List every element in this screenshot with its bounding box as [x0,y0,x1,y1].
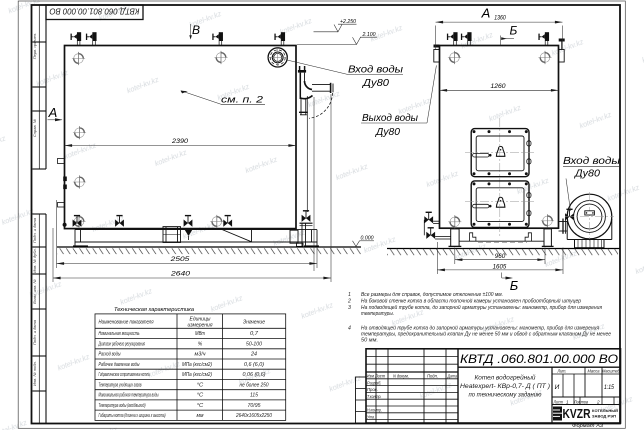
svg-text:А: А [481,6,491,21]
svg-text:50 мм.: 50 мм. [361,338,378,344]
svg-text:1260: 1260 [491,84,507,90]
svg-text:Вход воды: Вход воды [348,65,404,76]
svg-text:В: В [192,23,200,37]
svg-text:Температура уходящих газов: Температура уходящих газов [99,382,142,388]
svg-text:1605: 1605 [493,265,507,271]
svg-text:Утв.: Утв. [367,414,375,419]
svg-text:И: И [555,384,560,391]
svg-text:Подп.: Подп. [427,373,438,378]
svg-text:%: % [198,341,203,347]
svg-text:КОТЕЛЬНЫЙ: КОТЕЛЬНЫЙ [592,408,618,413]
svg-text:Наименование показателя: Наименование показателя [99,319,154,325]
svg-text:мм: мм [197,413,205,419]
svg-text:1:15: 1:15 [604,384,614,391]
svg-text:На подводящей трубе котла, д: На подводящей трубе котла, до запорной а… [361,304,602,311]
svg-text:МПа (кгс/см2): МПа (кгс/см2) [182,362,212,368]
svg-text:Инв. № дубл.: Инв. № дубл. [32,248,37,273]
svg-text:N докум.: N докум. [393,373,409,378]
svg-text:°С: °С [197,382,204,388]
svg-text:температуры.: температуры. [361,311,394,317]
svg-text:ЗАВОД РЭП: ЗАВОД РЭП [592,414,616,419]
svg-text:KVZR: KVZR [563,406,591,421]
svg-text:2: 2 [596,399,600,404]
svg-text:Изм Лист: Изм Лист [367,373,386,378]
svg-text:2505: 2505 [169,256,189,263]
svg-text:температуры, предохранительный: температуры, предохранительный клапан Ду… [361,331,611,338]
svg-text:°С: °С [197,403,204,409]
svg-text:Взам. инв. №: Взам. инв. № [32,278,37,303]
svg-text:Диапазон рабочего регулировани: Диапазон рабочего регулирования [98,341,145,347]
svg-text:МПа (кгс/см2): МПа (кгс/см2) [182,372,212,378]
svg-text:50-100: 50-100 [246,341,262,347]
svg-text:Техническая характеристика: Техническая характеристика [114,307,194,313]
svg-text:по техническому заданию: по техническому заданию [469,391,542,399]
svg-text:Гидравлическое сопротивление к: Гидравлическое сопротивление котла [99,372,150,378]
svg-text:1360: 1360 [494,16,506,22]
svg-text:0,6 (6,0): 0,6 (6,0) [244,362,264,368]
svg-text:0.000: 0.000 [361,235,374,241]
svg-text:На боковой стенке котла в обла: На боковой стенке котла в области топочн… [361,297,581,304]
svg-text:На отводящей трубе котла до за: На отводящей трубе котла до запорной арм… [361,324,599,331]
svg-text:2640: 2640 [170,271,191,278]
svg-text:Масса: Масса [588,368,600,373]
svg-text:960: 960 [495,254,506,260]
svg-text:24: 24 [250,352,257,358]
svg-text:Ду80: Ду80 [375,127,400,138]
svg-text:Дата: Дата [447,373,458,378]
svg-text:Подп. и дата: Подп. и дата [32,319,37,345]
svg-text:Подп. и дата: Подп. и дата [32,217,37,243]
svg-text:2: 2 [347,298,351,304]
svg-text:Heatexpert- КВр-0,7- Д ( ПТ ): Heatexpert- КВр-0,7- Д ( ПТ ) [460,383,550,390]
svg-text:Температура воды (вход/выход): Температура воды (вход/выход) [99,403,146,409]
svg-text:КВТД .060.801.00.000 ВО: КВТД .060.801.00.000 ВО [460,352,618,366]
svg-text:А: А [48,105,58,120]
svg-text:115: 115 [250,393,258,399]
svg-text:Б: Б [510,23,518,37]
svg-text:Вход воды: Вход воды [563,156,621,167]
svg-text:см. п. 2: см. п. 2 [221,95,264,106]
svg-text:Формат А3: Формат А3 [572,423,604,428]
svg-text:м3/ч: м3/ч [195,352,206,358]
svg-text:1: 1 [348,292,351,298]
svg-text:Ду80: Ду80 [362,78,390,89]
svg-text:КВТД.060.801.00.000 ВО: КВТД.060.801.00.000 ВО [49,6,139,15]
svg-text:Номинальная мощность: Номинальная мощность [99,331,140,337]
svg-text:70/95: 70/95 [248,403,261,409]
svg-text:Габариты котла (длинна х ширин: Габариты котла (длинна х ширина х высота… [99,413,166,419]
svg-text:Листов: Листов [573,399,588,404]
svg-text:Лист: Лист [553,399,563,404]
svg-text:Лит.: Лит. [557,368,567,373]
svg-text:Рабочее давление воды: Рабочее давление воды [99,362,140,368]
svg-text:Выход воды: Выход воды [362,113,419,124]
svg-text:3: 3 [348,305,351,311]
svg-text:Все размеры для справок, допус: Все размеры для справок, допустимое откл… [361,292,503,298]
svg-text:4: 4 [348,325,351,331]
svg-text:Б: Б [510,278,519,293]
svg-text:Пров.: Пров. [367,387,378,392]
svg-text:не более 250: не более 250 [240,382,269,388]
svg-text:0,7: 0,7 [250,331,258,337]
svg-text:измерения: измерения [188,322,213,328]
svg-text:1: 1 [566,399,569,404]
svg-text:Т.контр.: Т.контр. [367,394,382,399]
svg-text:Максимальная рабочая температу: Максимальная рабочая температура воды [99,393,159,399]
svg-text:2640х1605х2250: 2640х1605х2250 [235,413,272,419]
svg-text:°С: °С [197,393,204,399]
svg-text:Разраб.: Разраб. [367,380,382,385]
svg-text:Инв. № подл.: Инв. № подл. [32,361,37,386]
svg-text:Расход воды: Расход воды [99,352,121,358]
svg-text:Котел водогрейный: Котел водогрейный [475,374,536,382]
svg-text:Ду80: Ду80 [574,169,601,180]
svg-text:МВт: МВт [195,331,205,337]
svg-text:0,06 (0,6): 0,06 (0,6) [243,372,266,378]
svg-text:Значение: Значение [243,319,265,325]
svg-text:Справ. №: Справ. № [32,118,37,137]
svg-text:Масштаб: Масштаб [602,368,620,373]
svg-text:Перв. примен.: Перв. примен. [32,33,37,60]
svg-text:2390: 2390 [171,138,189,145]
svg-text:Н.контр.: Н.контр. [367,408,382,413]
